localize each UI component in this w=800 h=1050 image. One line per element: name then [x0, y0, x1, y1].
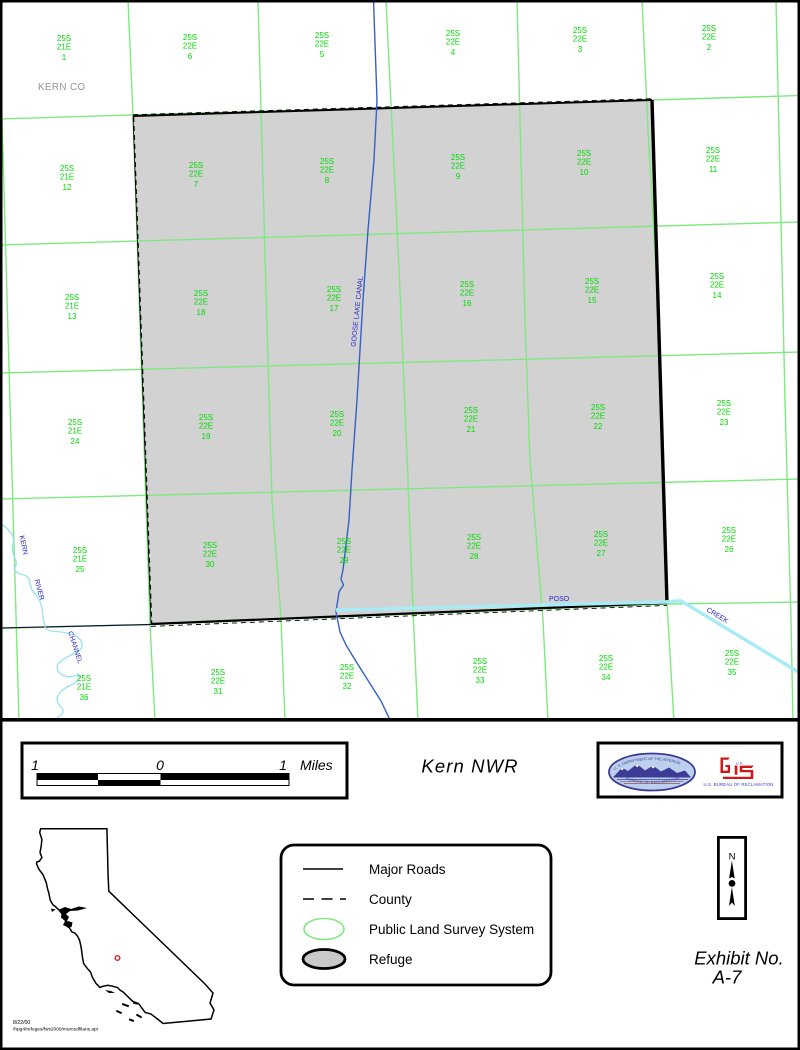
svg-text:8/22/00: 8/22/00 — [13, 1020, 30, 1026]
svg-text:1: 1 — [31, 757, 39, 773]
svg-text:POSO: POSO — [549, 596, 570, 603]
svg-text:Kern NWR: Kern NWR — [421, 756, 518, 777]
svg-text:Major Roads: Major Roads — [369, 862, 446, 877]
svg-text:/hpg4/refuges/fws2000/murcedfi: /hpg4/refuges/fws2000/murcedfilans.apr — [13, 1027, 99, 1033]
svg-text:1: 1 — [279, 757, 287, 773]
svg-text:County: County — [369, 892, 412, 907]
svg-text:Public Land Survey System: Public Land Survey System — [369, 922, 534, 937]
svg-text:U.S.: U.S. — [736, 762, 743, 766]
svg-text:U.S. BUREAU OF RECLAMATION: U.S. BUREAU OF RECLAMATION — [703, 782, 773, 787]
svg-text:N: N — [729, 852, 736, 863]
svg-text:Exhibit No.: Exhibit No. — [694, 948, 783, 969]
svg-text:0: 0 — [156, 757, 164, 773]
svg-text:Refuge: Refuge — [369, 952, 413, 967]
svg-text:A-7: A-7 — [712, 967, 743, 988]
svg-text:Miles: Miles — [300, 757, 333, 773]
svg-text:KERN CO: KERN CO — [38, 82, 85, 93]
